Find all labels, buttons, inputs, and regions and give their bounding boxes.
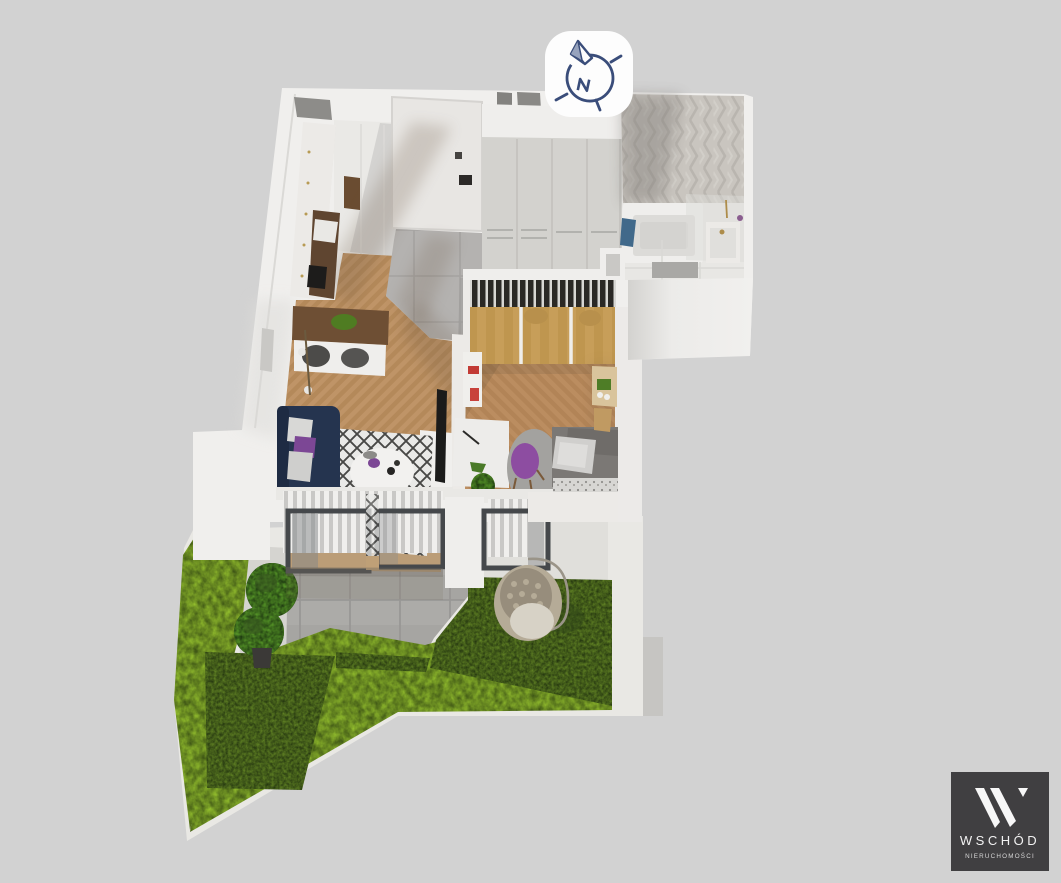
svg-text:WSCHÓD: WSCHÓD [960, 833, 1040, 848]
svg-text:NIERUCHOMOŚCI: NIERUCHOMOŚCI [965, 851, 1035, 860]
